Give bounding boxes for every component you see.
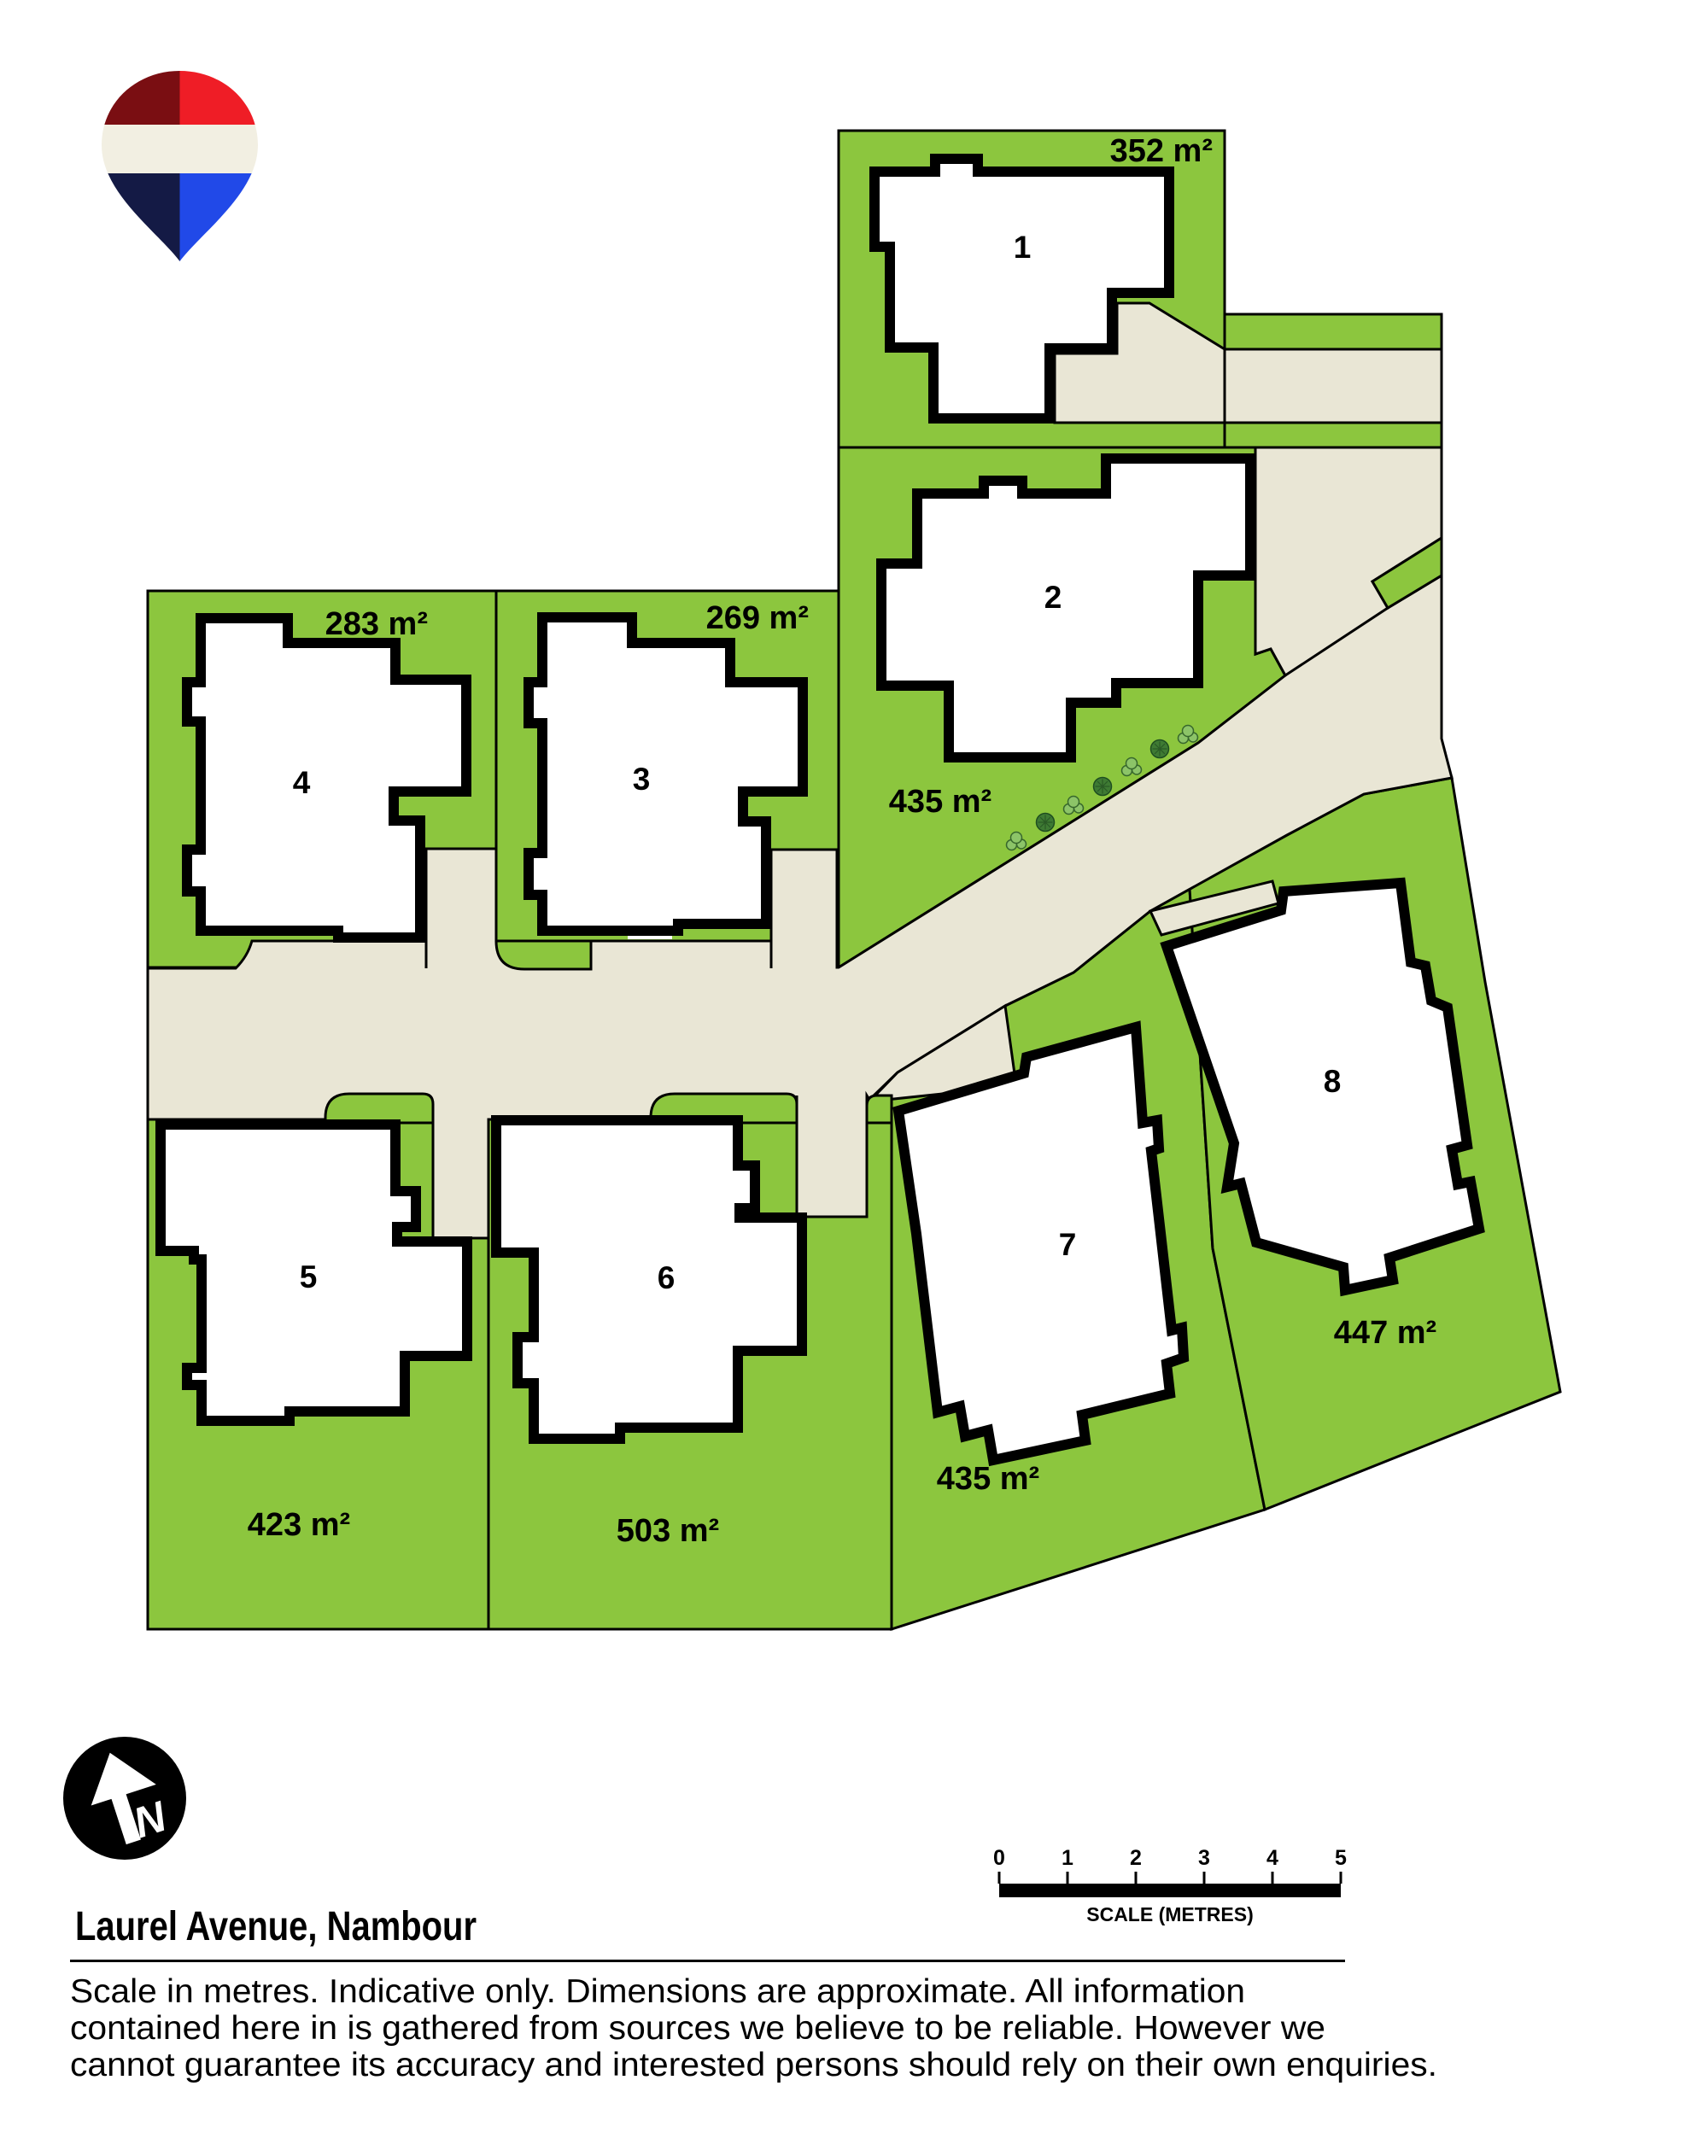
svg-text:1: 1: [1014, 230, 1032, 265]
svg-text:5: 5: [300, 1259, 318, 1294]
svg-text:503 m²: 503 m²: [617, 1513, 719, 1549]
svg-text:0: 0: [993, 1846, 1005, 1870]
svg-text:Scale in metres. Indicative on: Scale in metres. Indicative only. Dimens…: [70, 1973, 1245, 2010]
svg-text:435 m²: 435 m²: [889, 784, 991, 820]
svg-text:SCALE (METRES): SCALE (METRES): [1086, 1903, 1254, 1925]
svg-text:contained here in is gathered: contained here in is gathered from sourc…: [70, 2010, 1325, 2047]
svg-text:cannot guarantee its accuracy: cannot guarantee its accuracy and intere…: [70, 2047, 1437, 2083]
svg-text:7: 7: [1059, 1227, 1077, 1262]
svg-text:6: 6: [658, 1260, 676, 1295]
svg-text:3: 3: [633, 762, 651, 797]
svg-text:5: 5: [1335, 1846, 1347, 1870]
svg-text:283 m²: 283 m²: [325, 606, 428, 642]
svg-text:4: 4: [1266, 1846, 1278, 1870]
svg-text:1: 1: [1062, 1846, 1073, 1870]
svg-text:2: 2: [1130, 1846, 1142, 1870]
svg-text:435 m²: 435 m²: [937, 1461, 1039, 1497]
svg-text:447 m²: 447 m²: [1334, 1315, 1436, 1351]
svg-text:3: 3: [1198, 1846, 1210, 1870]
svg-text:423 m²: 423 m²: [248, 1507, 350, 1543]
svg-text:352 m²: 352 m²: [1110, 133, 1213, 169]
svg-text:8: 8: [1324, 1064, 1342, 1099]
svg-text:269 m²: 269 m²: [706, 600, 809, 636]
svg-text:Laurel Avenue, Nambour: Laurel Avenue, Nambour: [75, 1904, 477, 1949]
svg-text:2: 2: [1044, 580, 1062, 615]
svg-text:4: 4: [293, 765, 311, 800]
